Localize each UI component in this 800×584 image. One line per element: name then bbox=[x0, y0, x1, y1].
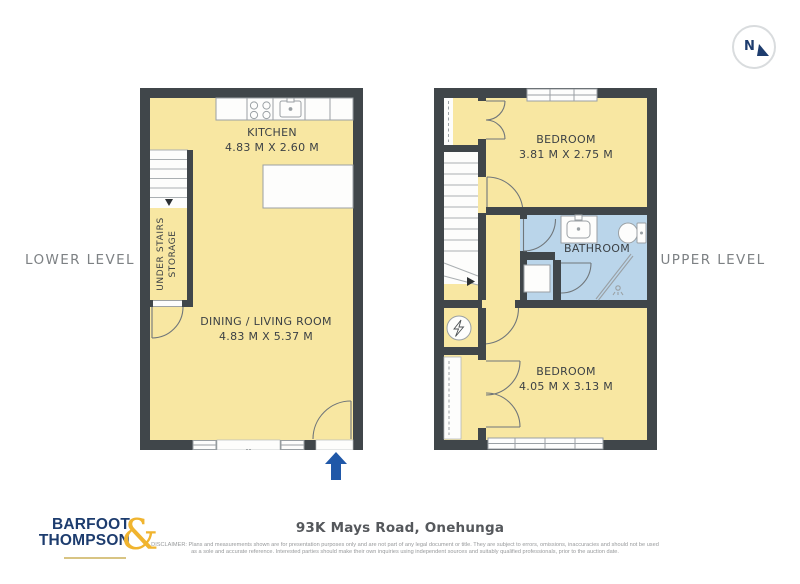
storage-label: UNDER STAIRS STORAGE bbox=[155, 195, 181, 313]
upper-level-plan: BEDROOM 3.81 M X 2.75 M BATHROOM BEDROOM… bbox=[434, 88, 657, 450]
disclaimer-line1: DISCLAIMER: Plans and measurements shown… bbox=[105, 542, 705, 549]
room-name: KITCHEN bbox=[192, 125, 352, 140]
bathroom-top-wall bbox=[486, 207, 647, 215]
sink-icon bbox=[280, 98, 301, 117]
toilet-icon bbox=[619, 223, 647, 243]
hot-water-cylinder-icon bbox=[447, 316, 471, 340]
entrance-arrow-icon bbox=[324, 452, 348, 480]
room-name: UNDER STAIRS bbox=[155, 195, 167, 313]
room-dims: 4.83 M X 2.60 M bbox=[192, 140, 352, 155]
room-name: BEDROOM bbox=[486, 364, 646, 379]
mid-wall bbox=[444, 300, 647, 308]
logo-tagline bbox=[64, 557, 126, 559]
wardrobe bbox=[444, 98, 453, 145]
shower-tray bbox=[524, 265, 550, 292]
wardrobe bbox=[444, 357, 461, 439]
room-dims: 3.81 M X 2.75 M bbox=[486, 147, 646, 162]
stair-wall bbox=[187, 150, 193, 307]
room-dims: 4.05 M X 3.13 M bbox=[486, 379, 646, 394]
room-name: BEDROOM bbox=[486, 132, 646, 147]
bathroom-label: BATHROOM bbox=[537, 241, 657, 256]
stairs-up bbox=[444, 152, 478, 286]
lower-level-plan: KITCHEN 4.83 M X 2.60 M DINING / LIVING … bbox=[140, 88, 363, 450]
disclaimer-text: DISCLAIMER: Plans and measurements shown… bbox=[105, 542, 705, 556]
french-door-opening bbox=[217, 440, 280, 450]
room-name: STORAGE bbox=[167, 195, 179, 313]
living-room-label: DINING / LIVING ROOM 4.83 M X 5.37 M bbox=[166, 314, 366, 344]
property-address: 93K Mays Road, Onehunga bbox=[200, 520, 600, 536]
kitchen-island bbox=[263, 165, 353, 208]
brand-line1: BARFOOT bbox=[36, 517, 130, 533]
floorplan-page: N LOWER LEVEL UPPER LEVEL bbox=[0, 0, 800, 584]
disclaimer-line2: as a sole and accurate reference. Intere… bbox=[105, 549, 705, 556]
bedroom2-label: BEDROOM 4.05 M X 3.13 M bbox=[486, 364, 646, 394]
upper-level-label: UPPER LEVEL bbox=[650, 252, 776, 268]
room-dims: 4.83 M X 5.37 M bbox=[166, 329, 366, 344]
room-name: BATHROOM bbox=[537, 241, 657, 256]
bedroom1-label: BEDROOM 3.81 M X 2.75 M bbox=[486, 132, 646, 162]
room-name: DINING / LIVING ROOM bbox=[166, 314, 366, 329]
kitchen-label: KITCHEN 4.83 M X 2.60 M bbox=[192, 125, 352, 155]
north-arrow-icon bbox=[734, 27, 778, 71]
north-compass: N bbox=[732, 25, 776, 69]
vanity-icon bbox=[561, 215, 597, 243]
lower-level-label: LOWER LEVEL bbox=[15, 252, 145, 268]
entry-opening bbox=[316, 440, 353, 450]
